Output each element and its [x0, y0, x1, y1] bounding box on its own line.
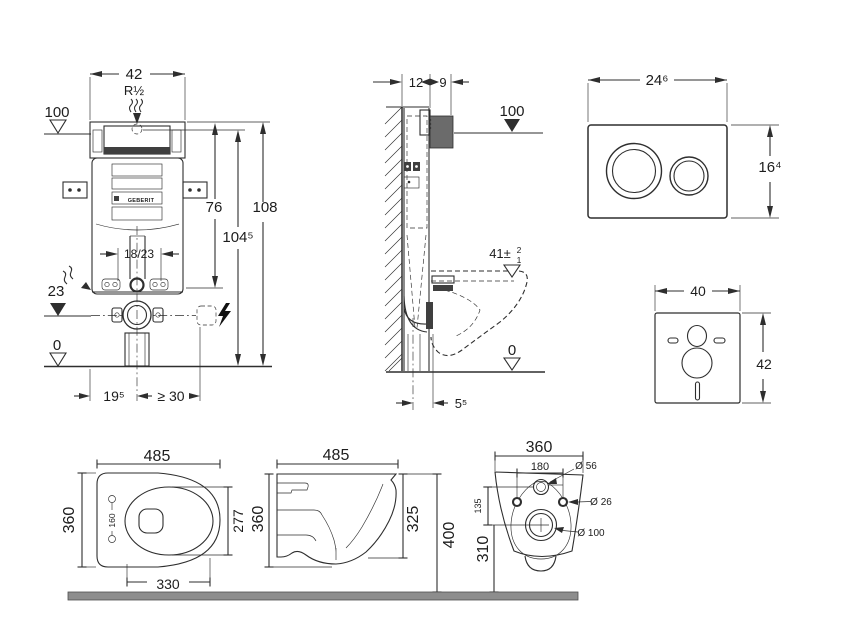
- level-label-supply: 100: [44, 104, 69, 121]
- dim-wc-width-top: 360: [61, 473, 96, 567]
- wc-outlet-spigot: [525, 556, 556, 571]
- dim-mat-height: 42: [742, 313, 772, 403]
- dim-bolt-spacing: 18/23: [100, 247, 179, 281]
- dim-label-wc-body-height: 360: [250, 506, 267, 533]
- level-label-floor-side: 0: [508, 342, 516, 359]
- front-view-drawing: 42 R½ 100 76 104⁵: [44, 66, 278, 404]
- dim-wc-body-height: 360: [250, 474, 332, 567]
- toilet-side-view-drawing: 485 360 325 400: [250, 447, 458, 592]
- dim-wc-depth-side: 485: [277, 447, 398, 469]
- callout-outlet-hole: Ø 100: [554, 527, 605, 539]
- toilet-top-view-drawing: 485 160 360 277 330: [61, 448, 246, 592]
- flush-plate-drawing: 24⁶ 16⁴: [588, 72, 782, 218]
- level-mark-floor-side: 0: [386, 342, 545, 372]
- dim-label-upper-height: 76: [206, 199, 223, 216]
- flush-button-small: [670, 157, 708, 195]
- dim-upper-height: 76: [206, 123, 223, 288]
- level-label-rim-plus: 2: [517, 245, 522, 255]
- dim-label-clearance-right: ≥ 30: [157, 388, 184, 404]
- dim-label-hole-offset: 135: [473, 498, 483, 513]
- fixing-bolts: [102, 279, 168, 292]
- dim-mat-width: 40: [655, 283, 740, 311]
- dim-label-water-thread: R½: [124, 83, 144, 98]
- wc-fixing-hole-left: [513, 498, 521, 506]
- electrical-connection-icon: [197, 303, 231, 327]
- dim-frame-depths: 12 9: [373, 74, 469, 115]
- level-label-floor: 0: [53, 337, 61, 354]
- dim-label-actuation-height: 104⁵: [222, 229, 253, 246]
- dim-label-bowl-depth: 330: [156, 576, 180, 592]
- cistern-top-box: [90, 122, 185, 158]
- dim-label-mat-width: 40: [690, 283, 706, 299]
- installation-drawing: 42 R½ 100 76 104⁵: [0, 0, 851, 630]
- dim-plate-width: 24⁶: [588, 72, 727, 122]
- toilet-back-view-drawing: 360 180 135 310: [473, 439, 612, 592]
- water-supply-icon: [130, 99, 143, 134]
- dim-label-plate-height: 16⁴: [758, 159, 781, 176]
- dim-label-wc-depth-side: 485: [323, 447, 350, 464]
- dim-outlet-depth: 5⁵: [396, 318, 467, 411]
- dim-label-outlet-height-rear: 310: [475, 536, 492, 563]
- dim-label-bolt-spacing: 18/23: [124, 247, 154, 261]
- dim-label-frame-width: 42: [126, 66, 143, 83]
- dim-label-offset-left: 19⁵: [103, 388, 124, 404]
- level-triangle-icon: [504, 119, 520, 132]
- dim-label-outlet-depth: 5⁵: [455, 396, 468, 411]
- wc-bowl-inner-back: [322, 515, 336, 560]
- wc-seat-ring: [125, 487, 213, 555]
- drain-outlet: [112, 301, 163, 366]
- level-label-supply-side: 100: [499, 103, 524, 120]
- wc-bowl-inner-front: [346, 484, 383, 548]
- dim-label-wc-width-rear: 360: [526, 439, 553, 456]
- wc-flush-opening: [139, 509, 163, 533]
- dim-actuation-height: 104⁵: [222, 130, 253, 366]
- level-mark-rim: 41± 2 1: [489, 245, 521, 277]
- insulation-mat-drawing: 40 42: [655, 283, 772, 403]
- wc-flush-channel: [277, 510, 322, 541]
- level-triangle-icon: [504, 358, 520, 370]
- level-mark-supply: 100: [44, 104, 91, 134]
- level-mark-supply-side: 100: [454, 103, 543, 133]
- dim-label-mat-height: 42: [756, 356, 772, 372]
- dim-wc-depth-top: 485: [97, 448, 220, 469]
- callout-fixing-hole: Ø 26: [568, 497, 612, 508]
- dim-label-box-depth: 9: [439, 75, 446, 90]
- inspection-box: [430, 116, 453, 148]
- dim-label-bowl-width: 277: [230, 509, 246, 533]
- wc-profile-outline: [277, 474, 396, 564]
- side-view-drawing: 12 9 100: [373, 74, 545, 411]
- dim-label-fixing-spacing: 180: [531, 461, 549, 473]
- dim-label-wc-depth-top: 485: [144, 448, 171, 465]
- dim-label-wc-total-height: 400: [441, 522, 458, 549]
- level-triangle-icon: [50, 353, 66, 366]
- callout-label-fixing-hole: Ø 26: [590, 497, 612, 508]
- drawing-canvas: 42 R½ 100 76 104⁵: [0, 0, 851, 630]
- dim-hole-offset: 135: [473, 487, 492, 525]
- mat-body: [655, 313, 740, 403]
- dim-label-total-height: 108: [252, 199, 277, 216]
- dim-bowl-depth: 330: [127, 558, 210, 592]
- callout-label-seat-hole: Ø 56: [575, 461, 597, 472]
- wc-cistern-inlet-notch: [277, 483, 308, 493]
- dim-label-plate-width: 24⁶: [646, 72, 669, 89]
- level-label-rim: 41±: [489, 246, 511, 261]
- dim-label-hinge-spacing: 160: [107, 513, 117, 527]
- dim-outlet-height-rear: 310: [475, 525, 499, 592]
- level-triangle-icon: [50, 120, 66, 133]
- floor-bar: [68, 592, 578, 600]
- level-triangle-icon: [50, 303, 66, 316]
- dim-hinge-spacing: 160: [107, 496, 117, 543]
- sound-insulation-icon: [63, 266, 91, 290]
- flush-button-large: [607, 144, 662, 199]
- dim-plate-height: 16⁴: [731, 125, 782, 218]
- wall-bracket-right: [183, 182, 207, 198]
- level-label-rim-minus: 1: [517, 255, 522, 265]
- wall-bracket-left: [63, 182, 87, 198]
- level-label-outlet: 23: [48, 283, 65, 300]
- wc-fixing-hole-right: [559, 498, 567, 506]
- dim-label-frame-depth: 12: [409, 75, 423, 90]
- callout-label-outlet-hole: Ø 100: [577, 528, 605, 539]
- frame-column: [404, 108, 453, 371]
- dim-label-wc-front-height: 325: [405, 506, 422, 533]
- dim-total-height: 108: [252, 122, 277, 366]
- frame-body: GEBERIT: [92, 158, 183, 294]
- dim-bowl-width: 277: [172, 487, 246, 555]
- brand-logo-mark: [114, 196, 119, 201]
- brand-logo-text: GEBERIT: [128, 198, 155, 204]
- dim-label-wc-width-top: 360: [61, 507, 78, 534]
